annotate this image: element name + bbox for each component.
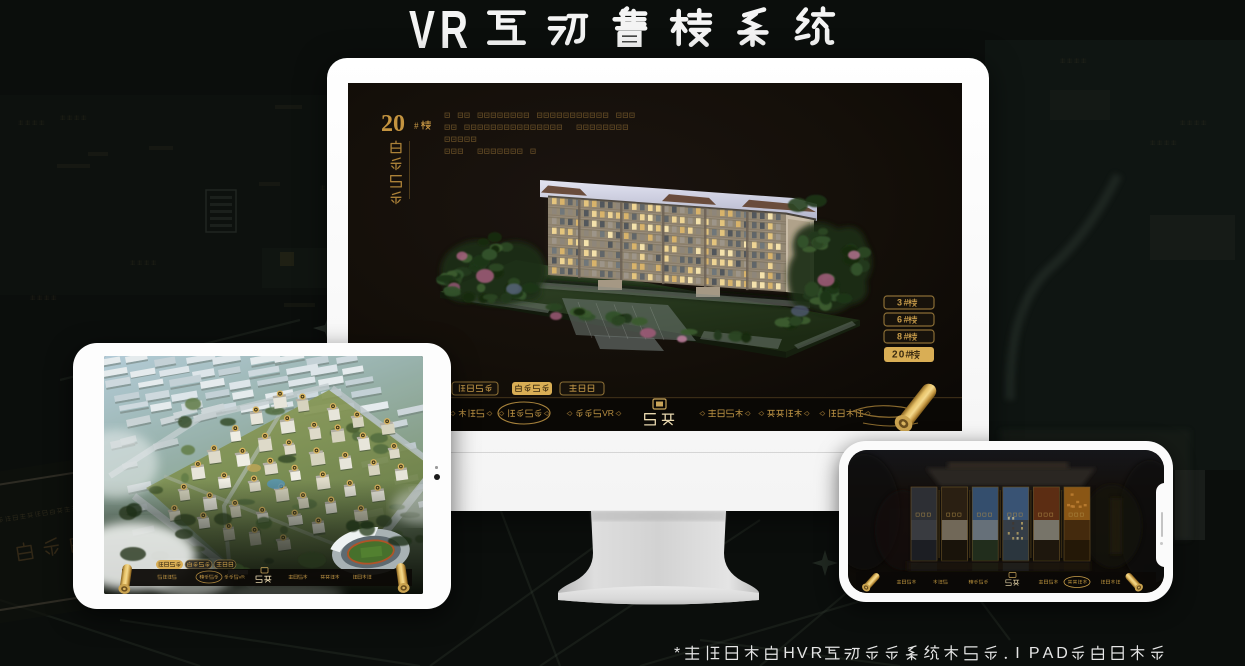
svg-text:*: * bbox=[674, 645, 680, 662]
svg-text:VR: VR bbox=[409, 0, 473, 59]
svg-text:#: # bbox=[904, 315, 909, 325]
svg-text:#: # bbox=[414, 121, 419, 131]
svg-text:#: # bbox=[904, 332, 909, 342]
svg-text:2: 2 bbox=[892, 350, 898, 361]
svg-text:V: V bbox=[797, 645, 808, 662]
svg-text:0: 0 bbox=[899, 350, 905, 361]
svg-text:I: I bbox=[1015, 645, 1019, 662]
svg-text:20: 20 bbox=[381, 111, 405, 137]
svg-text:R: R bbox=[608, 408, 614, 418]
svg-text:3: 3 bbox=[897, 298, 902, 308]
svg-text:D: D bbox=[1056, 645, 1068, 662]
svg-text:6: 6 bbox=[897, 315, 902, 325]
svg-text:P: P bbox=[1029, 645, 1040, 662]
svg-text:H: H bbox=[783, 645, 795, 662]
svg-text:R: R bbox=[811, 645, 823, 662]
svg-text:R: R bbox=[241, 574, 245, 580]
svg-text:#: # bbox=[904, 298, 909, 308]
svg-text:8: 8 bbox=[897, 332, 902, 342]
svg-text:A: A bbox=[1043, 645, 1054, 662]
